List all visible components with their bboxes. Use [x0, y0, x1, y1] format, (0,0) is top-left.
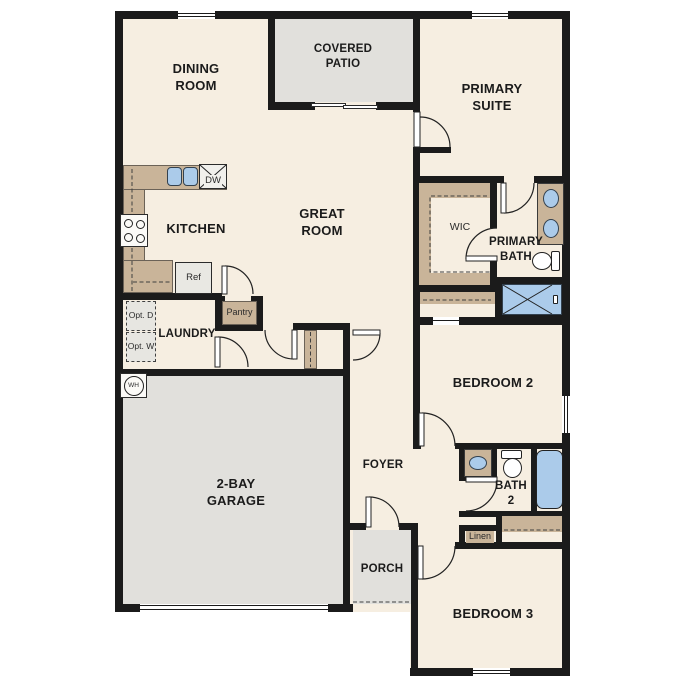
door-arc-primary-suite — [420, 117, 450, 147]
door-leaf-bedroom2 — [419, 413, 424, 446]
door-leaf-primary-bath — [501, 183, 506, 213]
door-leaf-pantry — [222, 266, 227, 294]
room-label-kitchen: KITCHEN — [146, 220, 246, 237]
door-leaf-primary-suite — [414, 112, 420, 147]
door-arc-bedroom2 — [422, 413, 455, 446]
door-leaf-front-door — [366, 497, 371, 527]
door-leaf-bedroom3 — [418, 546, 423, 579]
room-label-bath2: BATH 2 — [493, 479, 529, 509]
door-arcs — [218, 117, 534, 579]
door-arc-bedroom3 — [422, 546, 455, 579]
room-label-bedroom3: BEDROOM 3 — [443, 605, 543, 622]
room-label-bedroom2: BEDROOM 2 — [443, 374, 543, 391]
door-leaf-foyer-nook — [353, 330, 380, 335]
room-label-wic: WIC — [438, 221, 482, 233]
room-label-primary-suite: PRIMARY SUITE — [457, 80, 527, 114]
door-arc-pantry — [225, 266, 253, 294]
dishwasher-label-wrap: DW — [199, 170, 227, 188]
floor-plan: Ref Pantry Opt. D Opt. W WH Linen — [0, 0, 687, 687]
door-arc-foyer-nook — [353, 333, 380, 360]
shower-x — [503, 285, 552, 314]
door-arc-primary-bath — [504, 183, 534, 213]
dishwasher-label: DW — [204, 175, 222, 186]
room-label-porch: PORCH — [352, 562, 412, 577]
room-label-dining: DINING ROOM — [160, 60, 232, 94]
room-label-patio: COVERED PATIO — [309, 42, 377, 72]
door-leaf-entry-closet — [292, 330, 297, 359]
door-arc-front-door — [369, 497, 399, 527]
door-arc-entry-closet — [265, 330, 294, 359]
plan-linework — [0, 0, 687, 687]
room-label-primary-bath: PRIMARY BATH — [485, 235, 547, 265]
room-label-great-room: GREAT ROOM — [292, 205, 352, 239]
room-label-foyer: FOYER — [353, 458, 413, 473]
room-label-laundry: LAUNDRY — [151, 327, 223, 342]
room-label-garage: 2-BAY GARAGE — [203, 475, 269, 509]
